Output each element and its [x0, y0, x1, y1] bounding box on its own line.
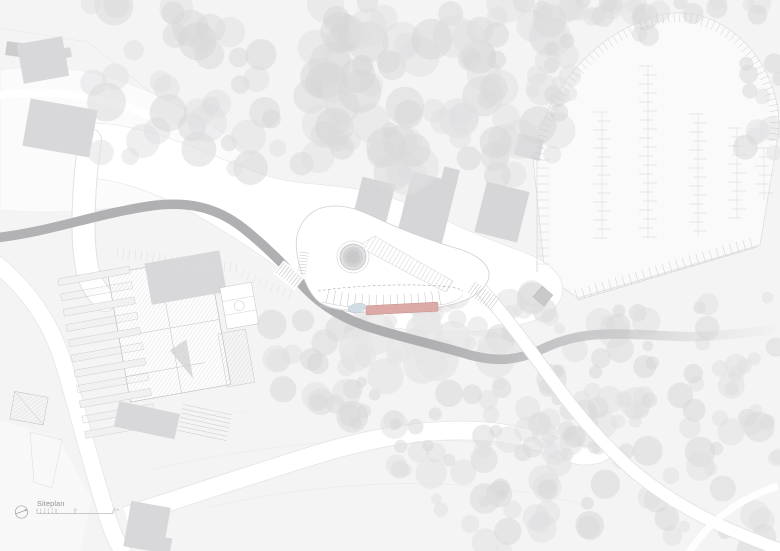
tree [554, 323, 565, 334]
tree [162, 2, 185, 25]
garden-hut [10, 391, 48, 424]
tree [514, 417, 540, 443]
tree [394, 100, 422, 128]
tree [633, 436, 663, 466]
plan-title: Siteplan [37, 499, 65, 508]
tree [88, 140, 114, 166]
tree [269, 140, 286, 157]
siteplan-drawing: Siteplan 0123451020 m [0, 0, 780, 551]
tree [494, 518, 521, 545]
tree [728, 366, 744, 382]
tree [429, 407, 442, 420]
tree [356, 377, 367, 388]
tree [87, 83, 126, 122]
scale-tick-label: 20 m [113, 508, 120, 512]
tree [563, 426, 585, 448]
tree [435, 380, 462, 407]
tree [611, 415, 625, 429]
tree [480, 74, 508, 102]
tree [340, 58, 375, 93]
tree [667, 383, 693, 409]
tree [643, 341, 654, 352]
tree [470, 483, 501, 514]
tree [416, 458, 447, 489]
tree [538, 479, 558, 499]
tree [717, 418, 744, 445]
tree [744, 412, 774, 442]
tree [154, 75, 180, 101]
tree [589, 365, 602, 378]
tree [591, 470, 620, 499]
tree [339, 330, 374, 365]
tree [189, 104, 227, 142]
tree [762, 292, 774, 304]
tree [503, 501, 521, 519]
tree [408, 419, 424, 435]
tree [283, 344, 303, 364]
tree [349, 8, 387, 46]
tree [527, 84, 540, 97]
tree [262, 109, 281, 128]
tree [462, 384, 482, 404]
tree [124, 40, 144, 60]
tree [686, 452, 715, 481]
tree [562, 86, 577, 101]
tree [577, 516, 600, 539]
tree [292, 309, 314, 331]
tree [439, 98, 479, 138]
tree [457, 146, 481, 170]
tree [596, 386, 623, 413]
tree [390, 418, 401, 429]
tree [655, 506, 680, 531]
tree [229, 47, 249, 67]
tree [633, 355, 656, 378]
tree [394, 440, 407, 453]
tree [613, 305, 626, 318]
tree [474, 440, 492, 458]
tree [326, 129, 348, 151]
scale-tick-label: 10 [74, 508, 77, 512]
tree [386, 455, 408, 477]
tree [679, 417, 701, 439]
tree [492, 376, 507, 391]
tree [697, 293, 719, 315]
tree [480, 126, 512, 158]
context-building [58, 47, 72, 59]
tree [231, 75, 250, 94]
tree [554, 43, 579, 68]
tree [310, 393, 327, 410]
tree [411, 19, 452, 60]
siteplan-sheet: Siteplan 0123451020 m [0, 0, 780, 551]
tree [748, 352, 761, 365]
courtyard-ring-core [347, 251, 360, 264]
tree [550, 103, 568, 121]
tree [629, 414, 642, 427]
tree [487, 51, 506, 70]
tree [461, 515, 479, 533]
tree [452, 20, 486, 54]
tree [642, 392, 657, 407]
winery-rooms [220, 282, 259, 329]
tree [733, 135, 758, 160]
tree [739, 65, 758, 84]
tree [581, 497, 594, 510]
context-building [17, 36, 69, 83]
tree [246, 39, 277, 70]
tree [663, 467, 680, 484]
tree [290, 152, 314, 176]
tree [227, 160, 244, 177]
tree [606, 335, 633, 362]
tree [422, 440, 434, 452]
tree [390, 163, 413, 186]
tree [755, 89, 771, 105]
tree [378, 54, 395, 71]
tree [178, 22, 216, 60]
tree [126, 124, 160, 158]
tree [434, 503, 449, 518]
tree [450, 459, 476, 485]
tree [710, 476, 736, 502]
tree [570, 2, 589, 21]
tree [257, 310, 287, 340]
tree [527, 513, 556, 542]
tree [367, 358, 403, 394]
tree [483, 406, 500, 423]
tree [270, 376, 296, 402]
tree [326, 395, 345, 414]
tree [684, 364, 703, 383]
tree [527, 66, 547, 86]
tree [678, 521, 690, 533]
tree [300, 348, 323, 371]
